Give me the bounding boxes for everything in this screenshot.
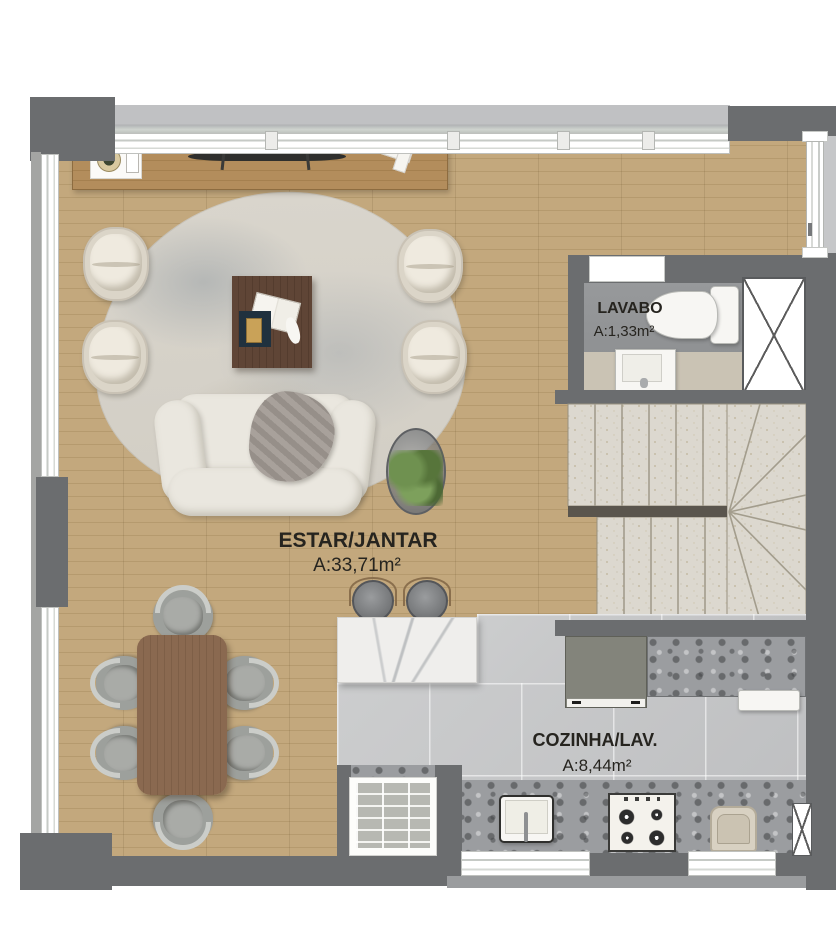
sofa	[158, 392, 372, 518]
dining-chair-bottom	[153, 793, 213, 845]
room-area-cozinha: A:8,44m²	[563, 756, 632, 776]
window-mullion-2	[447, 131, 460, 150]
bottom-window-2	[688, 851, 776, 876]
stairs	[555, 390, 806, 636]
kitchen-counter-right	[647, 636, 806, 697]
washbasin-faucet	[640, 378, 648, 388]
top-exterior-ledge	[112, 105, 730, 133]
gas-cooktop	[608, 793, 676, 852]
bottom-exterior-sill	[447, 876, 806, 888]
armchair-top-left	[83, 227, 149, 301]
lavabo-wall-left	[568, 255, 584, 397]
window-mullion-1	[265, 131, 278, 150]
window-mullion-3	[557, 131, 570, 150]
armchair-top-right	[397, 229, 463, 303]
room-label-cozinha: COZINHA/LAV.	[532, 730, 657, 751]
kitchen-sink-faucet	[524, 812, 528, 842]
potted-plant	[389, 450, 443, 506]
brick-box-fill	[356, 783, 430, 848]
left-wall-pier	[36, 477, 68, 607]
left-window-lower	[41, 607, 59, 836]
hall-floor	[824, 136, 836, 253]
entry-door-jamb-bottom	[802, 247, 828, 258]
coffee-table-book	[246, 318, 262, 343]
shaft-wall-top	[742, 255, 806, 277]
corner-block-top-left	[30, 97, 115, 161]
ventilation-shaft-bottom	[792, 803, 812, 856]
bar-stool-2	[406, 580, 448, 622]
kitchen-island	[337, 617, 477, 683]
window-mullion-4	[642, 131, 655, 150]
bar-stool-1	[352, 580, 394, 622]
bottom-window-1	[461, 851, 590, 876]
room-label-lavabo: LAVABO	[597, 300, 662, 318]
wall-hood-shelf	[738, 690, 800, 711]
lavabo-door	[589, 256, 665, 282]
corner-block-bottom-left	[20, 833, 112, 890]
armchair-bottom-left	[82, 320, 148, 394]
armchair-bottom-right	[401, 320, 467, 394]
top-window-band	[40, 133, 730, 154]
kitchen-wall-band	[555, 620, 806, 636]
entry-door-handle	[808, 223, 812, 236]
refrigerator-handles	[572, 701, 640, 704]
left-window-upper	[41, 154, 59, 477]
ventilation-shaft-top	[742, 277, 806, 394]
laundry-tank-basin	[717, 814, 750, 844]
room-area-lavabo: A:1,33m²	[594, 323, 655, 340]
right-wall	[806, 253, 836, 890]
room-area-estar: A:33,71m²	[313, 555, 401, 577]
bottom-wall-left	[112, 856, 462, 886]
floor-plan: ESTAR/JANTAR A:33,71m² LAVABO A:1,33m² C…	[0, 0, 836, 926]
room-label-estar: ESTAR/JANTAR	[278, 529, 437, 553]
dining-table	[137, 635, 227, 795]
